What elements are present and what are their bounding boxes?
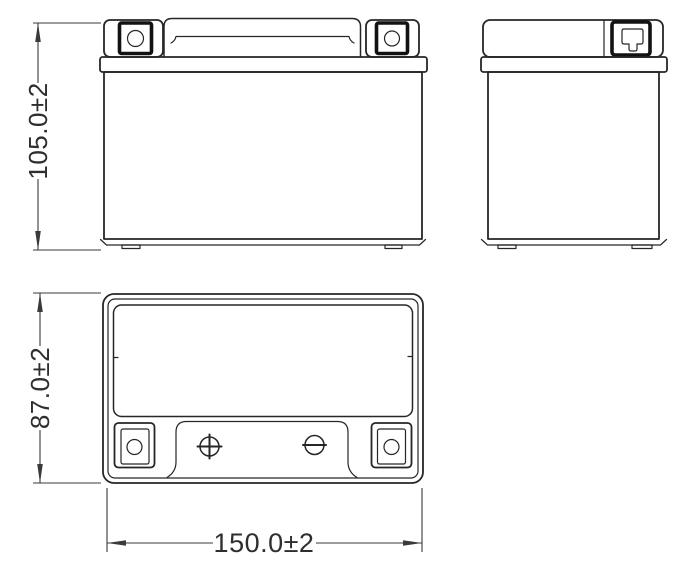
width-arrow-right-icon: [403, 540, 422, 546]
width-dimension: 150.0±2: [107, 488, 422, 558]
battery-technical-drawing: 105.0±2 87.0±2 150.0±2: [0, 0, 698, 578]
top-left-terminal-inner: [121, 429, 149, 464]
front-left-terminal-hole-icon: [128, 31, 144, 47]
side-base: [482, 240, 667, 246]
side-lid-band: [481, 57, 667, 72]
height-arrow-down-icon: [35, 231, 41, 250]
front-base: [101, 240, 426, 246]
front-body: [104, 72, 422, 239]
front-handle-groove: [171, 37, 354, 44]
front-right-foot: [385, 245, 402, 249]
negative-terminal-icon: [303, 436, 326, 455]
drawing-canvas: 105.0±2 87.0±2 150.0±2: [0, 0, 698, 578]
side-terminal-socket-icon: [622, 29, 643, 51]
side-view: [481, 20, 667, 249]
front-lid-band: [100, 57, 427, 72]
top-right-terminal: [372, 423, 412, 468]
top-left-terminal-hole-icon: [127, 440, 142, 455]
positive-terminal-icon: [198, 435, 222, 459]
depth-dimension: 87.0±2: [25, 293, 101, 483]
top-right-terminal-inner: [378, 429, 406, 464]
side-right-foot: [632, 245, 652, 249]
front-right-terminal-hole-icon: [385, 31, 400, 46]
front-right-terminal-block: [366, 20, 419, 57]
side-terminal-bolt-square: [612, 22, 650, 55]
height-dimension: 105.0±2: [23, 23, 101, 250]
top-lid-panel: [114, 305, 413, 417]
front-left-terminal-bolt-square: [120, 23, 152, 54]
front-right-terminal-bolt-square: [377, 23, 408, 54]
depth-arrow-down-icon: [37, 464, 43, 483]
top-center-platform: [167, 422, 357, 478]
depth-dimension-label: 87.0±2: [25, 347, 55, 429]
width-arrow-left-icon: [107, 540, 126, 546]
top-view: [103, 294, 423, 483]
top-right-terminal-hole-icon: [384, 440, 399, 455]
height-arrow-up-icon: [35, 23, 41, 42]
height-dimension-label: 105.0±2: [23, 82, 53, 179]
side-left-foot: [498, 245, 516, 249]
front-handle-recess: [164, 19, 361, 58]
front-view: [100, 19, 427, 249]
width-dimension-label: 150.0±2: [214, 528, 315, 558]
side-body: [488, 72, 659, 239]
top-outer-frame: [103, 294, 423, 483]
top-left-terminal: [115, 423, 155, 468]
front-left-terminal-block: [104, 20, 163, 57]
depth-arrow-up-icon: [37, 293, 43, 312]
front-left-foot: [122, 245, 140, 249]
